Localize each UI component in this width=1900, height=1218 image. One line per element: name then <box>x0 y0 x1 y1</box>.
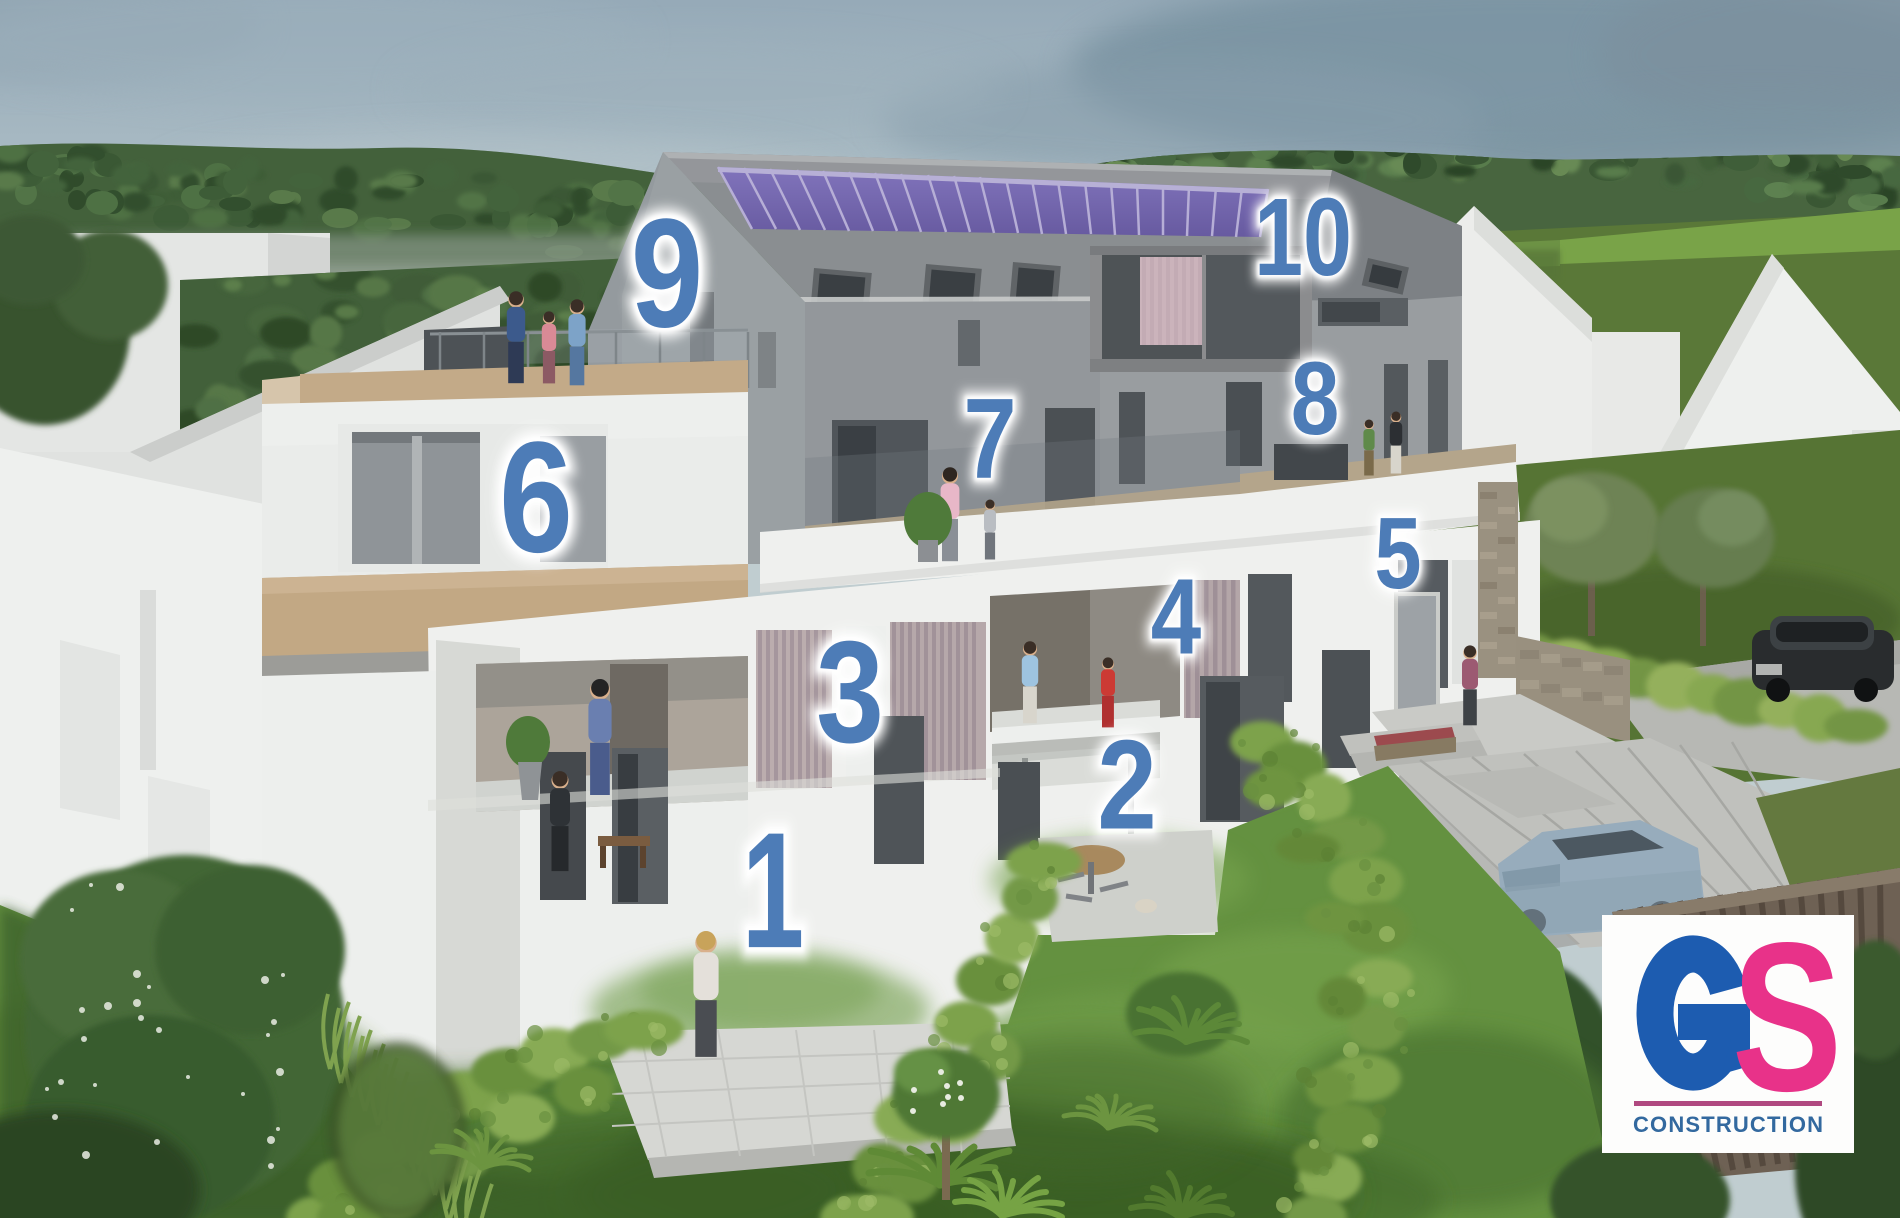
svg-text:CONSTRUCTION: CONSTRUCTION <box>1633 1112 1823 1137</box>
svg-text:8: 8 <box>1291 341 1340 457</box>
svg-text:4: 4 <box>1151 557 1201 677</box>
svg-text:6: 6 <box>499 409 573 586</box>
svg-text:9: 9 <box>631 187 703 360</box>
svg-text:S: S <box>1732 899 1842 1135</box>
svg-text:10: 10 <box>1254 177 1352 300</box>
svg-text:7: 7 <box>963 376 1016 503</box>
svg-text:1: 1 <box>742 797 804 982</box>
svg-text:3: 3 <box>816 612 884 773</box>
svg-text:2: 2 <box>1097 714 1156 856</box>
svg-text:5: 5 <box>1374 497 1421 610</box>
